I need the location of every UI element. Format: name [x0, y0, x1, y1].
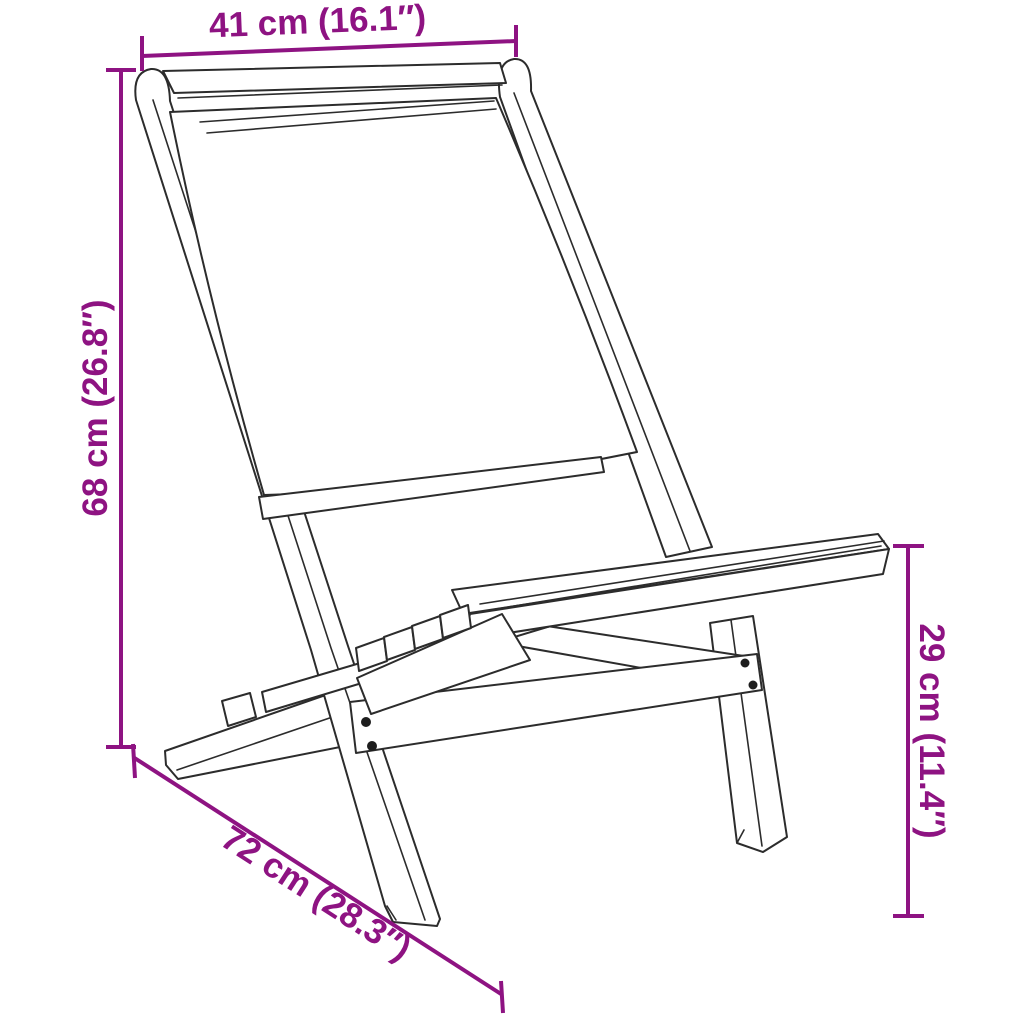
stretcher-screw-right-top	[741, 659, 750, 668]
chair-right-rear-leg	[710, 616, 787, 852]
dimension-diagram-canvas: 41 cm (16.1″) 68 cm (26.8″) 29 cm (11.4″…	[0, 0, 1024, 1024]
stretcher-screw-left-bottom	[367, 741, 377, 751]
dimension-width-label: 41 cm (16.1″)	[208, 0, 427, 45]
stretcher-screw-left-top	[361, 717, 371, 727]
chair-fabric-back-panel	[170, 98, 637, 495]
dimension-seat-height: 29 cm (11.4″)	[893, 546, 951, 916]
dimension-height: 68 cm (26.8″)	[76, 70, 136, 747]
dimension-seat-height-label: 29 cm (11.4″)	[912, 623, 951, 838]
dimension-depth-tick-left	[133, 744, 135, 778]
dimension-depth: 72 cm (28.3″)	[133, 744, 503, 1013]
dimension-width-line	[142, 41, 516, 56]
dimension-depth-tick-right	[501, 981, 503, 1013]
chair-drawing	[135, 59, 889, 926]
diagram-stage: 41 cm (16.1″) 68 cm (26.8″) 29 cm (11.4″…	[0, 0, 1024, 1024]
dimension-height-label: 68 cm (26.8″)	[76, 299, 115, 516]
dimension-width: 41 cm (16.1″)	[142, 0, 516, 71]
stretcher-screw-right-bottom	[749, 681, 758, 690]
chair-header-bar	[163, 63, 506, 93]
